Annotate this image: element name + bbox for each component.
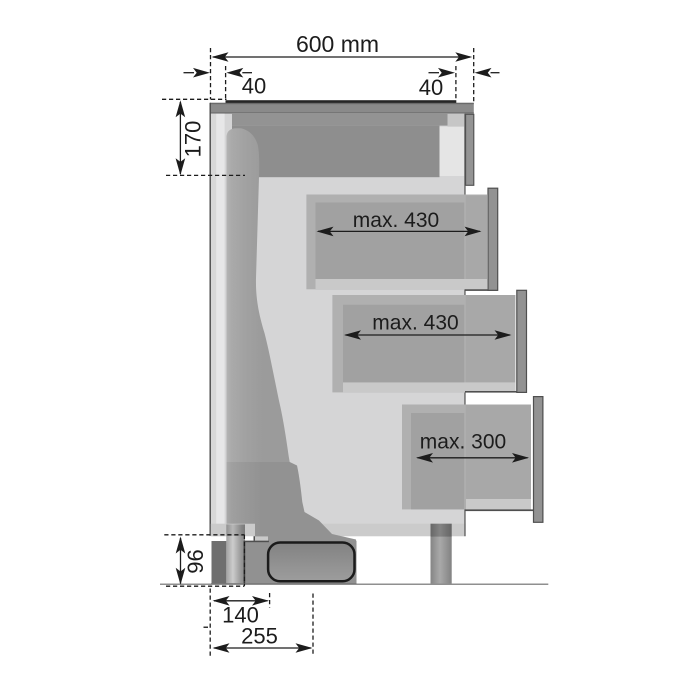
svg-text:600 mm: 600 mm bbox=[296, 31, 379, 57]
svg-text:255: 255 bbox=[241, 624, 278, 649]
svg-text:40: 40 bbox=[419, 75, 443, 100]
svg-text:max. 300: max. 300 bbox=[420, 430, 506, 453]
svg-text:max. 430: max. 430 bbox=[372, 311, 458, 334]
svg-text:96: 96 bbox=[183, 549, 208, 573]
svg-text:170: 170 bbox=[181, 121, 206, 158]
svg-text:max. 430: max. 430 bbox=[353, 209, 439, 232]
svg-text:40: 40 bbox=[242, 74, 266, 99]
